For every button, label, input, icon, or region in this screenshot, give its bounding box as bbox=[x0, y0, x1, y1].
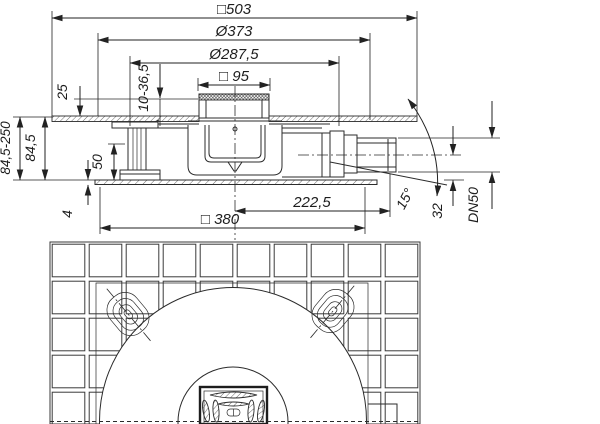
dim-dn50-label: DN50 bbox=[465, 187, 481, 223]
membrane-sheet-left bbox=[52, 116, 199, 122]
dim-15deg-label: 15° bbox=[393, 185, 417, 212]
dim-50-label: 50 bbox=[89, 154, 105, 170]
dim-287-label: Ø287,5 bbox=[208, 46, 259, 63]
base-plate bbox=[95, 180, 377, 185]
dim-503-label: □503 bbox=[217, 1, 252, 18]
design-grate bbox=[200, 387, 267, 424]
dim-380-label: □ 380 bbox=[201, 211, 240, 228]
dim-373-label: Ø373 bbox=[215, 23, 253, 40]
outlet-assembly bbox=[282, 131, 396, 177]
dim-845-label: 84,5 bbox=[22, 134, 38, 161]
swivel-arc bbox=[408, 99, 438, 196]
union-nut bbox=[330, 131, 344, 177]
support-foot bbox=[112, 122, 160, 180]
grate-frame-rim bbox=[199, 94, 269, 100]
dim-4-label: 4 bbox=[59, 210, 75, 218]
dim-25-label: 25 bbox=[54, 84, 70, 101]
drain-installation-drawing: □503 Ø373 Ø287,5 □ 95 25 10-36,5 84,5-25… bbox=[0, 0, 600, 424]
membrane-sheet-right bbox=[269, 116, 417, 122]
dim-845-250-label: 84,5-250 bbox=[0, 121, 13, 175]
dim-10-36-label: 10-36,5 bbox=[135, 64, 151, 112]
dim-95-label: □ 95 bbox=[219, 68, 250, 85]
dim-32-label: 32 bbox=[429, 203, 445, 219]
plan-view bbox=[50, 242, 420, 424]
dim-2225-label: 222,5 bbox=[292, 194, 331, 211]
grate-slot-middle bbox=[218, 402, 249, 406]
technical-drawing-canvas: □503 Ø373 Ø287,5 □ 95 25 10-36,5 84,5-25… bbox=[0, 0, 600, 424]
